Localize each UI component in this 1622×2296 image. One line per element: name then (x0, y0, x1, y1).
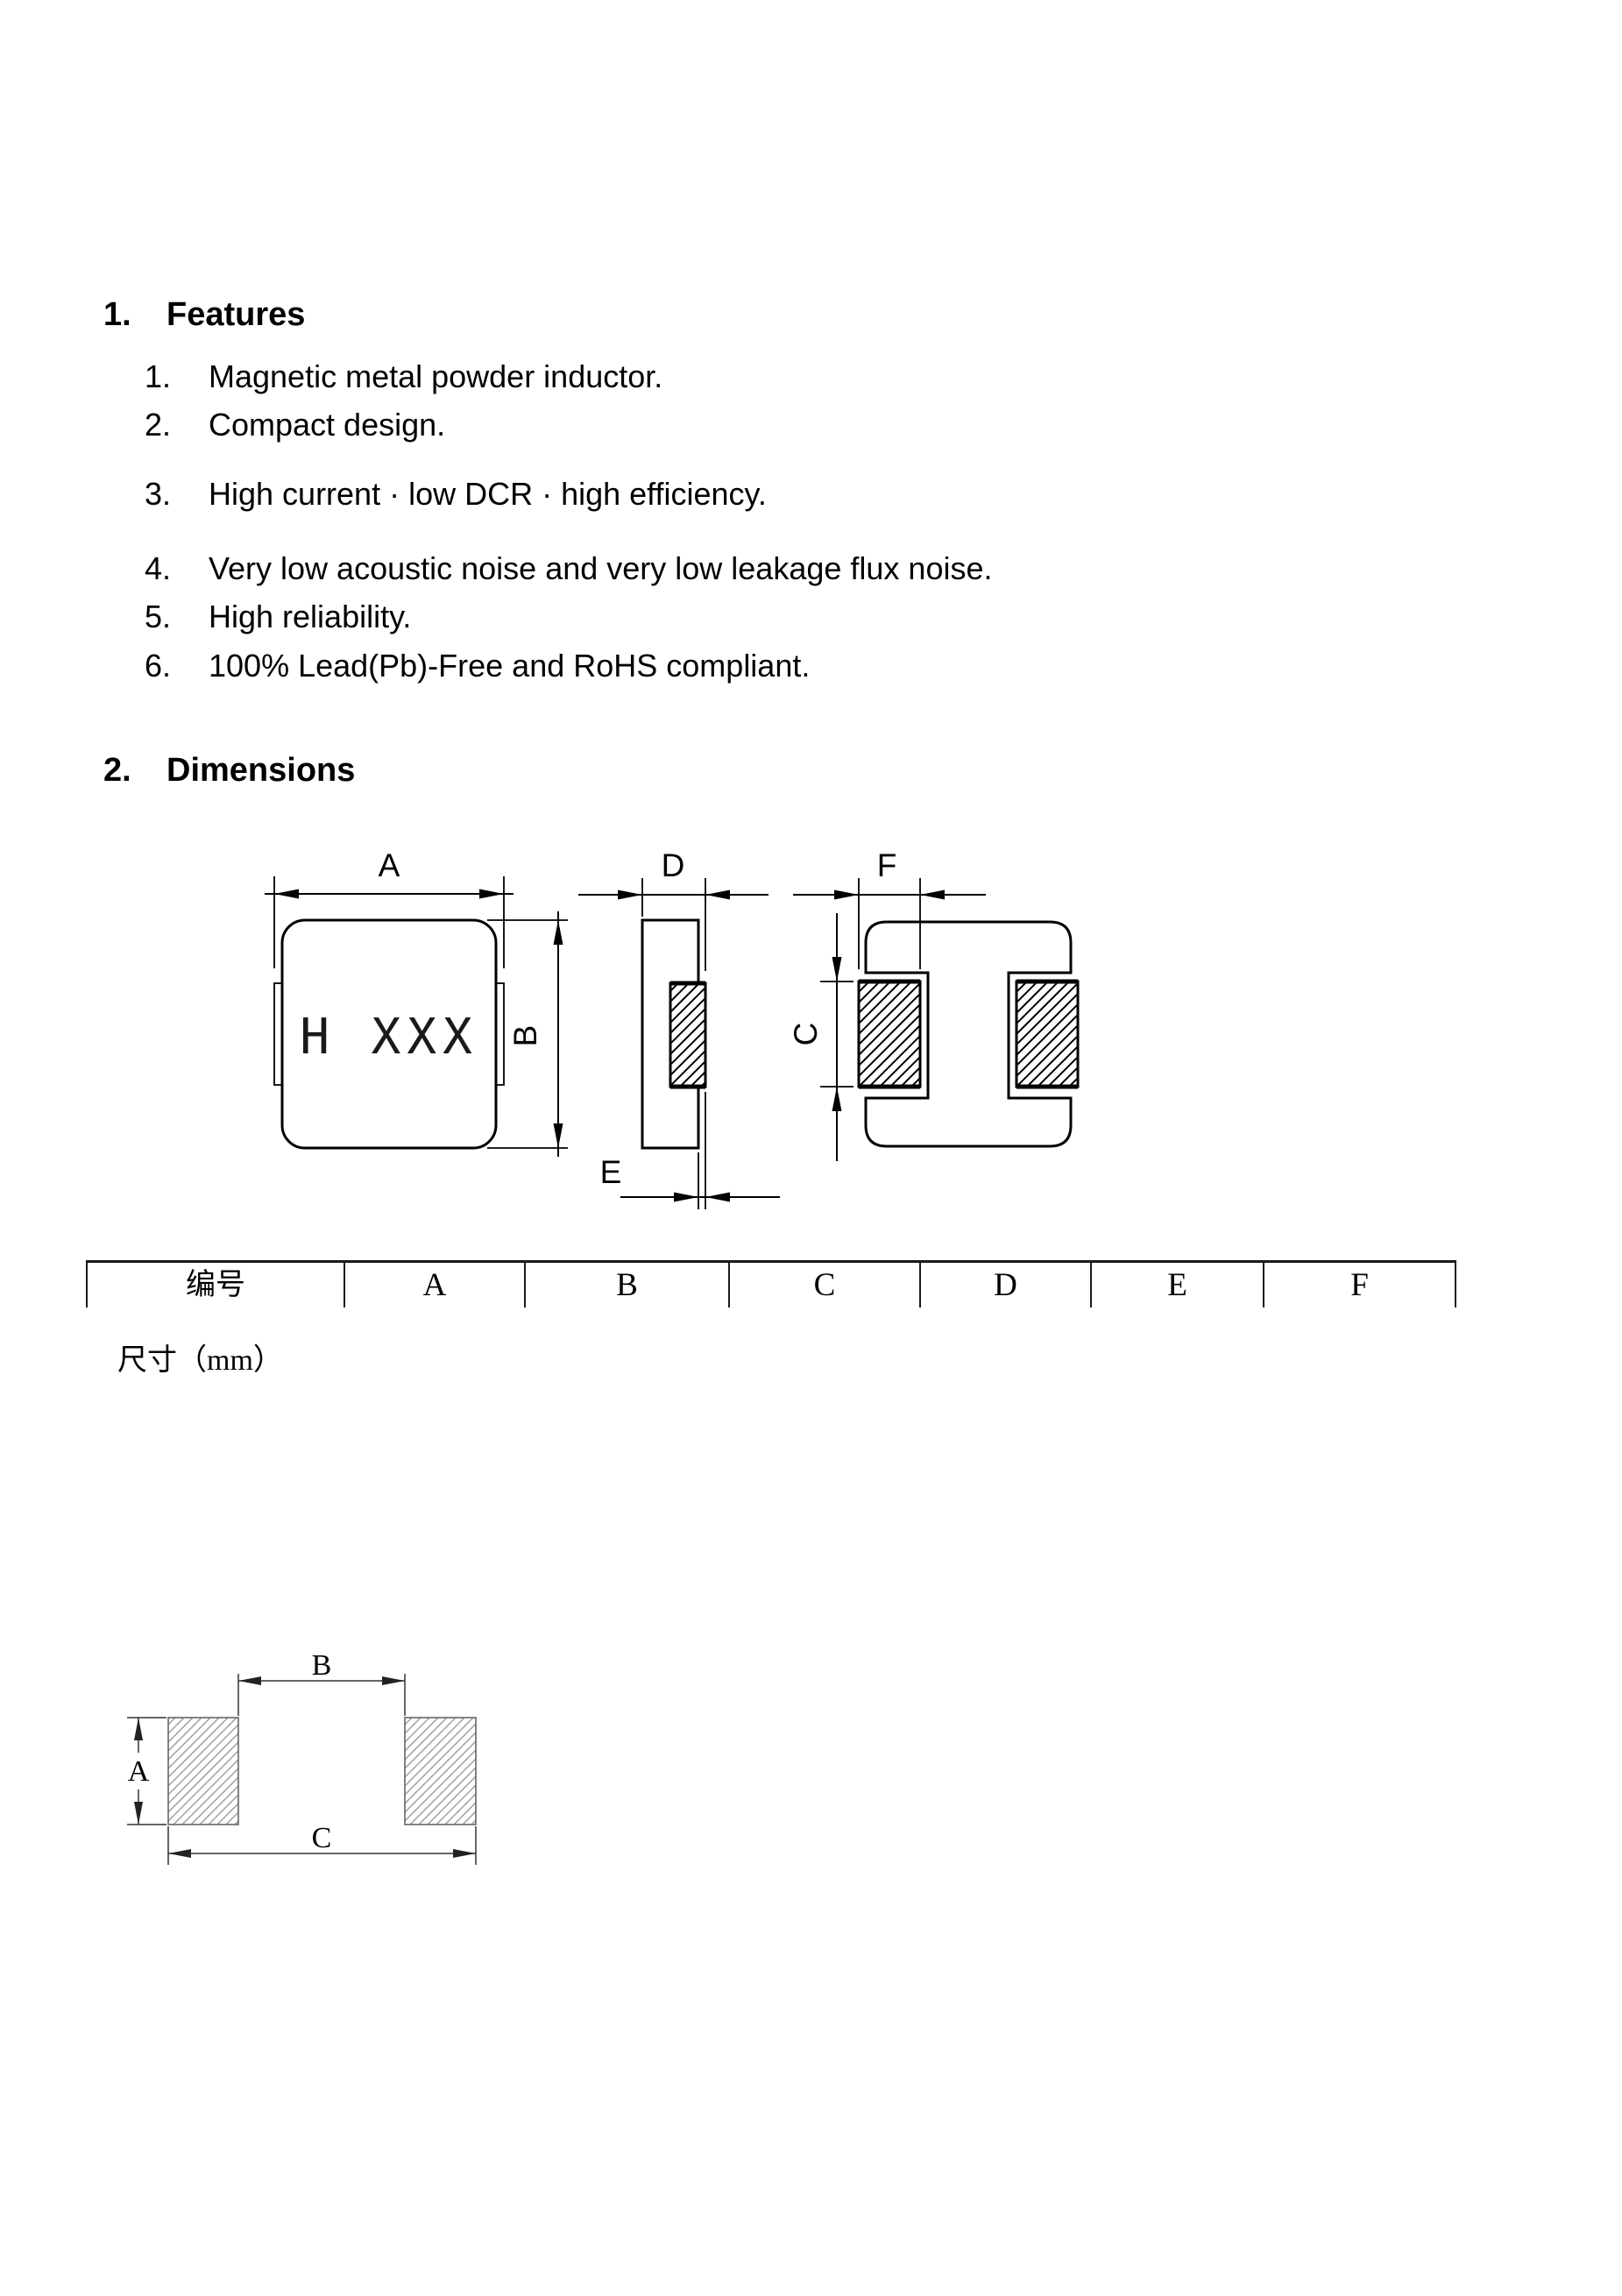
table-header-a: A (344, 1263, 524, 1307)
table-header-partnumber: 编号 (88, 1263, 344, 1307)
feature-item: 1. Magnetic metal powder inductor. (145, 358, 662, 395)
dim-label-b: B (507, 1025, 543, 1047)
top-view: H XXX A B (265, 847, 568, 1157)
feature-item: 3. High current · low DCR · high efficie… (145, 475, 767, 513)
feature-item-number: 2. (145, 406, 209, 443)
dim-label-f: F (877, 847, 897, 883)
side-terminal-pad (670, 983, 705, 1087)
land-pad-right (405, 1718, 476, 1825)
dim-label-a: A (379, 847, 400, 883)
feature-item-text: Compact design. (209, 406, 445, 443)
table-header-e: E (1090, 1263, 1263, 1307)
feature-item-number: 6. (145, 647, 209, 684)
feature-item-number: 1. (145, 358, 209, 395)
dimensions-heading: 2. Dimensions (103, 752, 355, 790)
dimension-table: 编号 A B C D E F (86, 1260, 1456, 1307)
feature-item-text: High reliability. (209, 598, 411, 635)
table-header-b: B (524, 1263, 728, 1307)
feature-item-number: 5. (145, 598, 209, 635)
table-unit-label: 尺寸（mm） (117, 1336, 283, 1378)
bottom-left-pad (859, 981, 920, 1087)
bottom-right-pad (1016, 981, 1078, 1087)
bottom-view: F C (788, 847, 1078, 1161)
dim-label-c: C (788, 1023, 824, 1046)
feature-item-number: 4. (145, 549, 209, 587)
feature-item: 4. Very low acoustic noise and very low … (145, 549, 992, 587)
land-dim-label-c: C (312, 1822, 332, 1854)
table-header-d: D (919, 1263, 1090, 1307)
feature-item-text: Magnetic metal powder inductor. (209, 358, 662, 395)
datasheet-page: 1. Features 1. Magnetic metal powder ind… (0, 0, 1622, 2296)
inductor-dimension-drawing: H XXX A B (131, 824, 1157, 1227)
land-dim-label-b: B (312, 1649, 332, 1682)
feature-item-number: 3. (145, 475, 209, 513)
feature-item-text: 100% Lead(Pb)-Free and RoHS compliant. (209, 647, 810, 684)
table-header-c: C (728, 1263, 919, 1307)
table-header-f: F (1263, 1263, 1455, 1307)
features-heading-title: Features (166, 296, 305, 335)
dimensions-heading-title: Dimensions (166, 752, 355, 790)
land-pattern-drawing: B A C (79, 1612, 552, 1919)
feature-item-text: High current · low DCR · high efficiency… (209, 475, 767, 513)
dim-label-e: E (600, 1154, 622, 1190)
land-pad-left (168, 1718, 238, 1825)
dim-label-d: D (662, 847, 685, 883)
side-view: D E (578, 847, 780, 1209)
feature-item: 2. Compact design. (145, 406, 445, 443)
land-dim-label-a: A (128, 1755, 150, 1788)
feature-item: 6. 100% Lead(Pb)-Free and RoHS compliant… (145, 647, 810, 684)
feature-item-text: Very low acoustic noise and very low lea… (209, 549, 992, 587)
features-heading-number: 1. (103, 296, 166, 335)
features-heading: 1. Features (103, 296, 305, 335)
part-marking: H XXX (300, 1009, 478, 1066)
feature-item: 5. High reliability. (145, 598, 411, 635)
dimensions-heading-number: 2. (103, 752, 166, 790)
